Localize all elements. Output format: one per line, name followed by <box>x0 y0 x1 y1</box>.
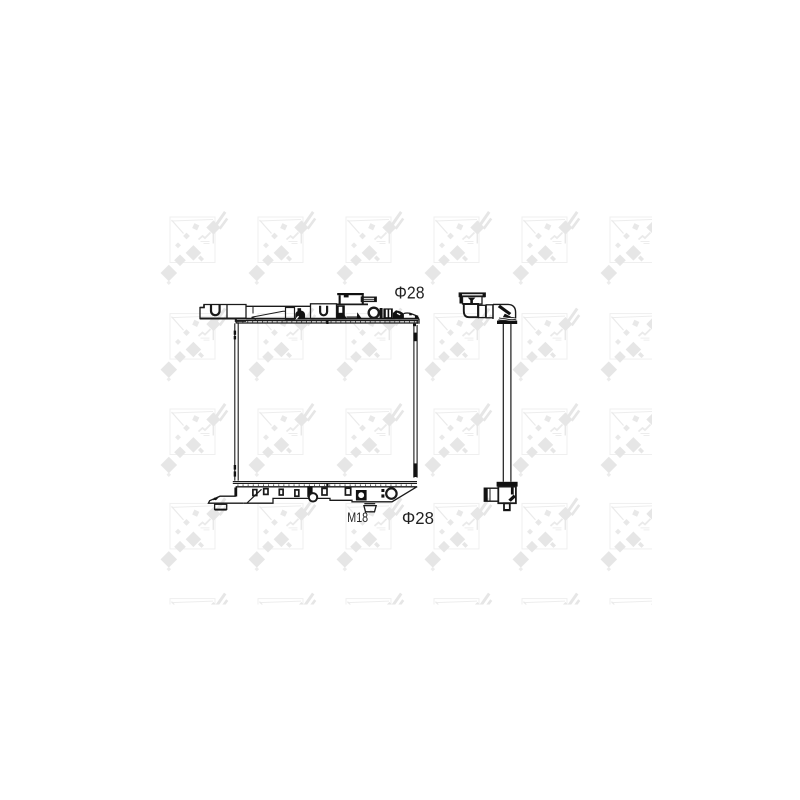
svg-text:M18: M18 <box>347 510 368 526</box>
svg-text:Φ28: Φ28 <box>394 283 424 303</box>
svg-text:Φ28: Φ28 <box>402 508 434 528</box>
